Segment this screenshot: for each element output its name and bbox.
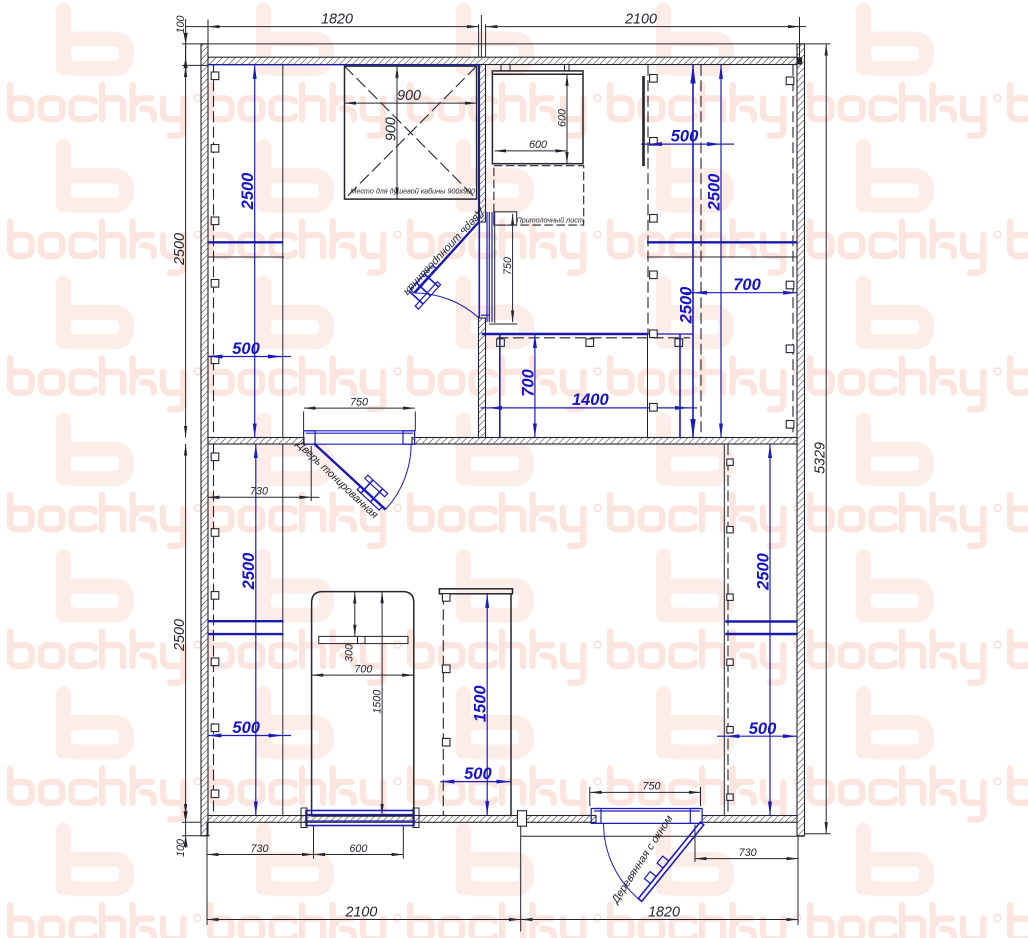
svg-text:500: 500 — [232, 719, 260, 737]
svg-text:2100: 2100 — [344, 904, 377, 920]
svg-text:730: 730 — [250, 486, 268, 498]
svg-text:900: 900 — [383, 117, 399, 141]
svg-text:500: 500 — [464, 765, 492, 783]
svg-text:750: 750 — [350, 396, 368, 408]
svg-text:700: 700 — [733, 276, 761, 294]
svg-text:2500: 2500 — [678, 286, 696, 325]
svg-text:1820: 1820 — [648, 904, 680, 920]
svg-text:2500: 2500 — [239, 172, 257, 211]
svg-text:100: 100 — [175, 839, 187, 857]
svg-text:2500: 2500 — [172, 619, 188, 652]
svg-text:750: 750 — [502, 257, 514, 275]
svg-text:1820: 1820 — [321, 12, 353, 28]
svg-text:600: 600 — [349, 843, 367, 855]
svg-text:Притолочный лист: Притолочный лист — [517, 216, 584, 225]
svg-text:500: 500 — [671, 127, 699, 145]
svg-text:5329: 5329 — [813, 442, 829, 474]
svg-text:Место для душевой кабины 900х9: Место для душевой кабины 900х900 — [350, 186, 475, 195]
svg-text:700: 700 — [520, 368, 538, 396]
svg-text:2500: 2500 — [706, 173, 724, 212]
svg-text:730: 730 — [250, 843, 268, 855]
svg-text:500: 500 — [749, 720, 777, 738]
svg-text:900: 900 — [397, 88, 421, 104]
svg-text:750: 750 — [642, 781, 660, 793]
svg-text:2500: 2500 — [755, 552, 773, 591]
svg-text:2500: 2500 — [240, 552, 258, 591]
svg-text:2100: 2100 — [624, 12, 657, 28]
svg-text:1400: 1400 — [572, 391, 610, 409]
svg-text:2500: 2500 — [172, 233, 188, 266]
svg-text:300: 300 — [343, 644, 355, 662]
svg-text:600: 600 — [529, 139, 547, 151]
svg-text:730: 730 — [739, 847, 757, 859]
svg-text:100: 100 — [175, 15, 187, 33]
svg-text:600: 600 — [556, 109, 568, 127]
svg-text:700: 700 — [354, 663, 372, 675]
svg-text:500: 500 — [232, 340, 260, 358]
svg-text:1500: 1500 — [371, 690, 383, 714]
svg-text:1500: 1500 — [472, 685, 490, 723]
